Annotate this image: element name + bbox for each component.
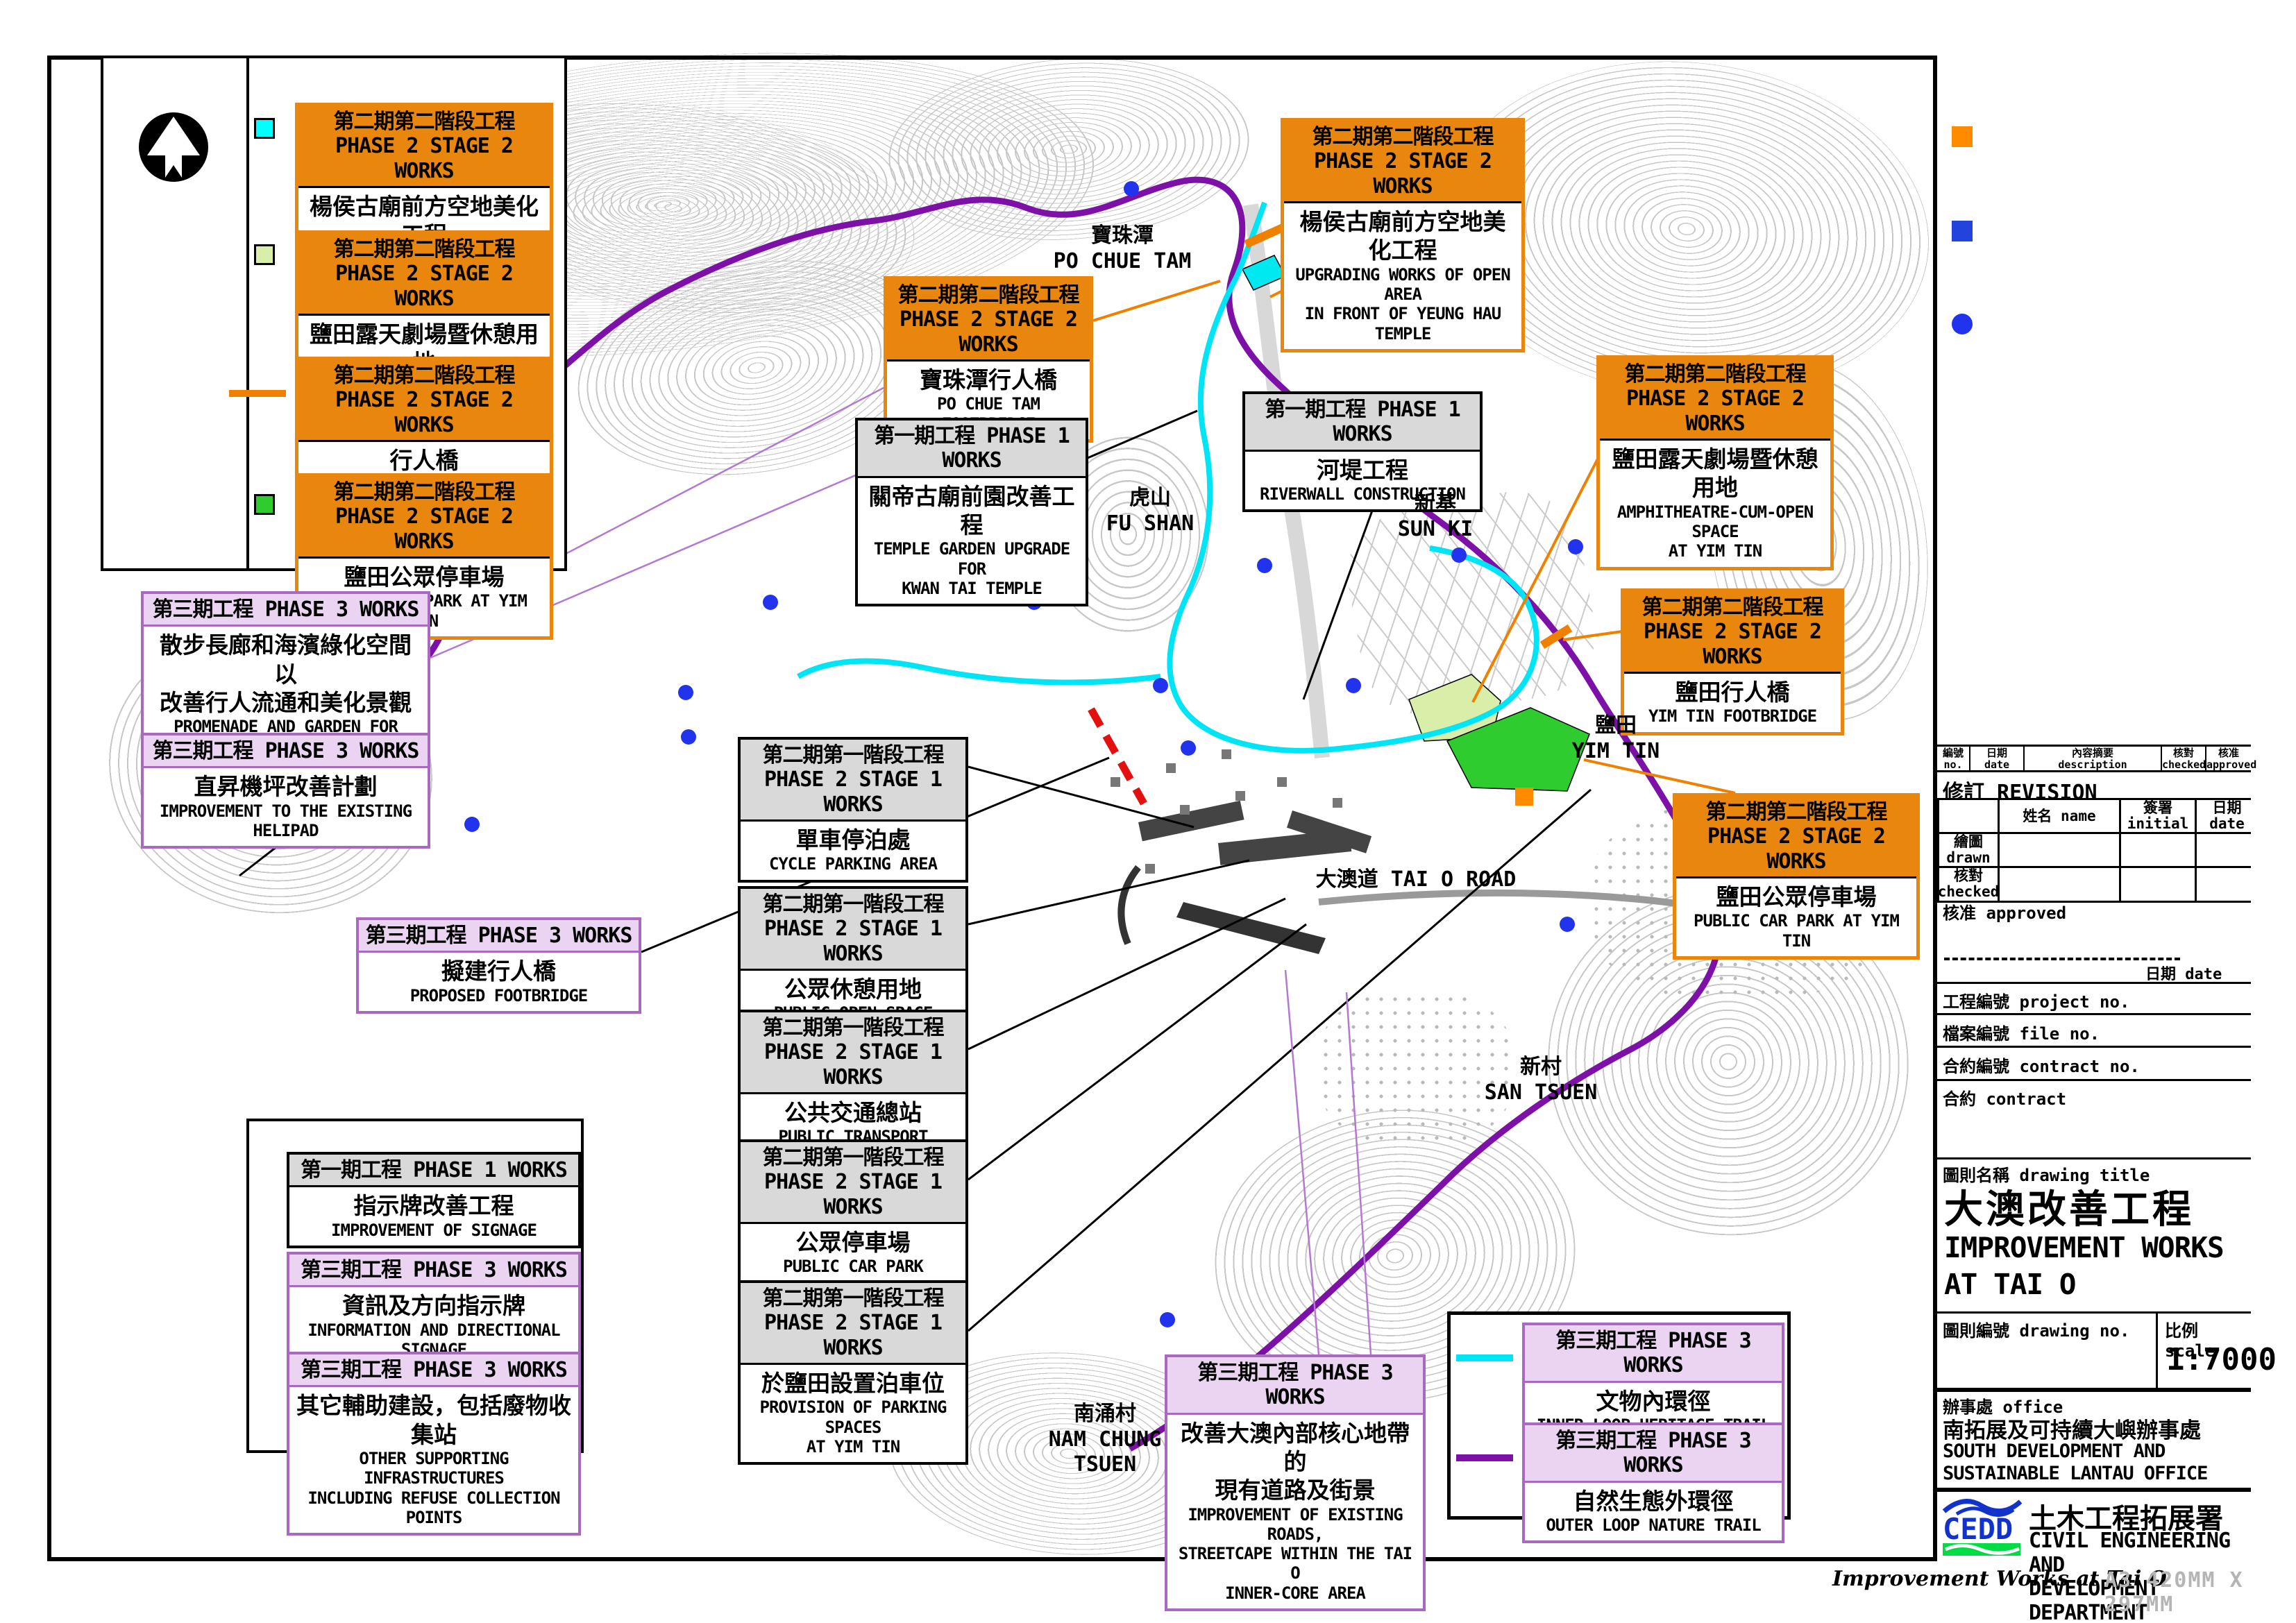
callout-text-en: IMPROVEMENT TO THE EXISTING HELIPAD xyxy=(149,801,422,841)
callout-public-car-park: 第二期第一階段工程 PHASE 2 STAGE 1 WORKS 公眾停車場PUB… xyxy=(738,1139,968,1285)
approved-signature-line xyxy=(1944,958,2180,960)
divider xyxy=(1937,1488,2251,1492)
callout-cycle-parking: 第二期第一階段工程 PHASE 2 STAGE 1 WORKS 單車停泊處CYC… xyxy=(738,737,968,883)
callout-text-zh: 公共交通總站 xyxy=(746,1098,960,1127)
project-no-label: 工程編號 project no. xyxy=(1943,988,2129,1012)
divider xyxy=(1937,1079,2251,1081)
rev-col-date: 日期 date xyxy=(1970,747,2025,770)
callout-outer-loop-trail: 第三期工程 PHASE 3 WORKS 自然生態外環徑OUTER LOOP NA… xyxy=(1522,1422,1784,1543)
callout-text-zh: 散步長廊和海濱綠化空間以 改善行人流通和美化景觀 xyxy=(149,631,422,717)
rev-col-approved: 核准 approved xyxy=(2206,747,2251,770)
callout-text-en: IMPROVEMENT OF SIGNAGE xyxy=(295,1221,573,1240)
callout-text-en: OTHER SUPPORTING INFRASTRUCTURES INCLUDI… xyxy=(295,1449,573,1527)
approved-label: 核准 approved xyxy=(1943,899,2066,924)
footer-paper-size: A3 420MM X 297MM xyxy=(2104,1568,2296,1617)
label-fu-shan: 虎山 FU SHAN xyxy=(1106,486,1194,536)
sig-row-checked: 核對 checked xyxy=(1939,868,1998,900)
divider-vertical xyxy=(2156,1311,2158,1388)
callout-header: 第二期第二階段工程 PHASE 2 STAGE 2 WORKS xyxy=(1284,121,1521,201)
callout-header: 第二期第二階段工程 PHASE 2 STAGE 2 WORKS xyxy=(298,477,550,556)
callout-header: 第三期工程 PHASE 3 WORKS xyxy=(144,736,428,766)
label-tai-o-road: 大澳道 TAI O ROAD xyxy=(1316,867,1517,893)
callout-text-en: TEMPLE GARDEN UPGRADE FOR KWAN TAI TEMPL… xyxy=(863,539,1080,598)
callout-header: 第二期第二階段工程 PHASE 2 STAGE 2 WORKS xyxy=(1624,592,1841,672)
signage-dot-icon xyxy=(1952,314,1973,334)
callout-header: 第二期第一階段工程 PHASE 2 STAGE 1 WORKS xyxy=(741,889,965,969)
callout-kwan-tai-temple: 第一期工程 PHASE 1 WORKS 關帝古廟前園改善工程TEMPLE GAR… xyxy=(855,418,1088,606)
title-block: 編號 no. 日期 date 內容摘要 description 核對 check… xyxy=(1933,56,2251,1561)
sig-col-date: 日期 date xyxy=(2197,800,2257,832)
temple-open-area xyxy=(1242,255,1285,290)
callout-header: 第二期第一階段工程 PHASE 2 STAGE 1 WORKS xyxy=(741,740,965,819)
callout-header: 第二期第一階段工程 PHASE 2 STAGE 1 WORKS xyxy=(741,1012,965,1092)
callout-text-zh: 擬建行人橋 xyxy=(364,957,633,985)
village-buildings xyxy=(1111,749,1371,954)
callout-text-en: PUBLIC CAR PARK AT YIM TIN xyxy=(1682,911,1911,951)
callout-header: 第三期工程 PHASE 3 WORKS xyxy=(289,1354,578,1385)
approved-date-label: 日期 date xyxy=(2145,962,2222,984)
callout-header: 第一期工程 PHASE 1 WORKS xyxy=(1245,394,1480,450)
callout-text-zh: 其它輔助建設，包括廢物收集站 xyxy=(295,1391,573,1449)
callout-text-zh: 改善大澳內部核心地帶的 現有道路及街景 xyxy=(1173,1419,1417,1505)
callout-header: 第三期工程 PHASE 3 WORKS xyxy=(359,920,639,951)
callout-header: 第三期工程 PHASE 3 WORKS xyxy=(1525,1425,1782,1481)
callout-header: 第二期第二階段工程 PHASE 2 STAGE 2 WORKS xyxy=(1600,359,1830,439)
callout-header: 第三期工程 PHASE 3 WORKS xyxy=(144,594,428,624)
callout-header: 第二期第二階段工程 PHASE 2 STAGE 2 WORKS xyxy=(298,360,550,440)
label-yim-tin: 鹽田 YIM TIN xyxy=(1572,713,1660,764)
callout-text-zh: 資訊及方向指示牌 xyxy=(295,1291,573,1320)
callout-text-zh: 直昇機坪改善計劃 xyxy=(149,772,422,801)
callout-text-zh: 鹽田行人橋 xyxy=(1630,678,1835,706)
swatch-amphitheatre xyxy=(254,244,275,265)
callout-text-en: YIM TIN FOOTBRIDGE xyxy=(1630,706,1835,726)
refuse-p2s2-icon xyxy=(1952,126,1973,147)
file-no-label: 檔案編號 file no. xyxy=(1943,1020,2100,1044)
swatch-footbridge-line xyxy=(229,390,286,397)
divider xyxy=(1937,1157,2251,1159)
office-en: SOUTH DEVELOPMENT AND SUSTAINABLE LANTAU… xyxy=(1943,1441,2207,1486)
callout-text-en: PUBLIC CAR PARK xyxy=(746,1257,960,1276)
callout-text-en: IMPROVEMENT OF EXISTING ROADS, STREETCAP… xyxy=(1173,1505,1417,1604)
callout-text-zh: 寶珠潭行人橋 xyxy=(893,366,1084,394)
callout-text-en: PROPOSED FOOTBRIDGE xyxy=(364,986,633,1005)
swatch-inner-loop-line xyxy=(1456,1354,1513,1361)
swatch-cyan-open-area xyxy=(254,118,275,139)
drawing-title-zh: 大澳改善工程 xyxy=(1944,1178,2194,1234)
callout-signage-improvement: 第一期工程 PHASE 1 WORKS 指示牌改善工程IMPROVEMENT O… xyxy=(287,1152,581,1248)
label-sun-ki: 新基 SUN KI xyxy=(1398,491,1473,542)
divider xyxy=(1937,1311,2251,1314)
north-arrow-icon xyxy=(136,110,211,185)
svg-text:CEDD: CEDD xyxy=(1943,1512,2013,1546)
rev-col-no: 編號 no. xyxy=(1937,747,1970,770)
callout-yeung-hau-temple: 第二期第二階段工程 PHASE 2 STAGE 2 WORKS 楊侯古廟前方空地… xyxy=(1281,118,1525,352)
sig-row-drawn: 繪圖 drawn xyxy=(1939,834,1998,866)
callout-text-en: CYCLE PARKING AREA xyxy=(746,854,960,874)
drawing-title-en: IMPROVEMENT WORKS AT TAI O xyxy=(1944,1230,2224,1304)
callout-amphitheatre: 第二期第二階段工程 PHASE 2 STAGE 2 WORKS 鹽田露天劇場暨休… xyxy=(1596,355,1834,570)
divider xyxy=(1937,982,2251,984)
sig-col-initial: 簽署 initial xyxy=(2121,800,2195,832)
callout-proposed-footbridge: 第三期工程 PHASE 3 WORKS 擬建行人橋PROPOSED FOOTBR… xyxy=(356,917,641,1014)
signature-table: 姓名 name 簽署 initial 日期 date 繪圖 drawn 核對 c… xyxy=(1937,798,2251,903)
scale-value: 1:7000 xyxy=(2166,1342,2277,1377)
callout-text-zh: 鹽田露天劇場暨休憩用地 xyxy=(1605,445,1825,502)
callout-inner-core-roads: 第三期工程 PHASE 3 WORKS 改善大澳內部核心地帶的 現有道路及街景I… xyxy=(1165,1354,1426,1611)
swatch-car-park xyxy=(254,494,275,515)
refuse-point-p2s2 xyxy=(1515,788,1533,806)
callout-text-en: OUTER LOOP NATURE TRAIL xyxy=(1530,1515,1776,1535)
label-nam-chung-tsuen: 南涌村 NAM CHUNG TSUEN xyxy=(1049,1402,1162,1478)
callout-text-zh: 指示牌改善工程 xyxy=(295,1191,573,1220)
callout-yim-tin-car-park: 第二期第二階段工程 PHASE 2 STAGE 2 WORKS 鹽田公眾停車場P… xyxy=(1673,793,1920,960)
label-san-tsuen: 新村 SAN TSUEN xyxy=(1485,1055,1598,1105)
callout-text-en: PROVISION OF PARKING SPACES AT YIM TIN xyxy=(746,1397,960,1456)
callout-supporting-infrastructure: 第三期工程 PHASE 3 WORKS 其它輔助建設，包括廢物收集站OTHER … xyxy=(287,1352,581,1536)
callout-text-zh: 行人橋 xyxy=(304,446,544,475)
cedd-logo: CEDD xyxy=(1941,1493,2023,1558)
callout-header: 第三期工程 PHASE 3 WORKS xyxy=(1167,1357,1423,1413)
drawing-sheet: 第二期第二階段工程 PHASE 2 STAGE 2 WORKS 楊侯古廟前方空地… xyxy=(0,0,2296,1623)
callout-header: 第三期工程 PHASE 3 WORKS xyxy=(1525,1325,1782,1381)
callout-text-en: AMPHITHEATRE-CUM-OPEN SPACE AT YIM TIN xyxy=(1605,502,1825,561)
callout-text-zh: 於鹽田設置泊車位 xyxy=(746,1369,960,1397)
sig-col-name: 姓名 name xyxy=(2000,800,2119,832)
callout-text-en: UPGRADING WORKS OF OPEN AREA IN FRONT OF… xyxy=(1290,265,1516,343)
revision-header-row: 編號 no. 日期 date 內容摘要 description 核對 check… xyxy=(1937,745,2251,772)
callout-parking-spaces-yim-tin: 第二期第一階段工程 PHASE 2 STAGE 1 WORKS 於鹽田設置泊車位… xyxy=(738,1280,968,1465)
callout-text-zh: 公眾停車場 xyxy=(746,1228,960,1257)
callout-text-zh: 鹽田公眾停車場 xyxy=(1682,883,1911,911)
callout-text-zh: 關帝古廟前園改善工程 xyxy=(863,482,1080,540)
contract-no-label: 合約編號 contract no. xyxy=(1943,1053,2140,1077)
callout-helipad: 第三期工程 PHASE 3 WORKS 直昇機坪改善計劃IMPROVEMENT … xyxy=(141,733,430,849)
callout-header: 第二期第二階段工程 PHASE 2 STAGE 2 WORKS xyxy=(298,106,550,186)
contract-label: 合約 contract xyxy=(1943,1085,2066,1110)
proposed-footbridge-mark xyxy=(1091,709,1144,804)
refuse-p3-icon xyxy=(1952,221,1973,241)
callout-header: 第二期第二階段工程 PHASE 2 STAGE 2 WORKS xyxy=(298,234,550,314)
callout-header: 第二期第一階段工程 PHASE 2 STAGE 1 WORKS xyxy=(741,1283,965,1363)
callout-text-zh: 楊侯古廟前方空地美化工程 xyxy=(1290,207,1516,265)
label-po-chue-tam: 寶珠潭 PO CHUE TAM xyxy=(1054,223,1192,274)
callout-info-signage: 第三期工程 PHASE 3 WORKS 資訊及方向指示牌INFORMATION … xyxy=(287,1252,581,1368)
drawing-no-label: 圖則編號 drawing no. xyxy=(1943,1317,2129,1341)
callout-text-zh: 單車停泊處 xyxy=(746,826,960,854)
callout-text-zh: 自然生態外環徑 xyxy=(1530,1487,1776,1515)
divider xyxy=(1937,1013,2251,1015)
callout-header: 第二期第一階段工程 PHASE 2 STAGE 1 WORKS xyxy=(741,1142,965,1222)
rev-col-checked: 核對 checked xyxy=(2162,747,2206,770)
callout-text-zh: 文物內環徑 xyxy=(1530,1387,1776,1416)
callout-text-zh: 河堤工程 xyxy=(1251,456,1474,484)
callout-header: 第三期工程 PHASE 3 WORKS xyxy=(289,1255,578,1285)
divider xyxy=(1937,1388,2251,1392)
callout-header: 第一期工程 PHASE 1 WORKS xyxy=(289,1155,578,1185)
callout-header: 第二期第二階段工程 PHASE 2 STAGE 2 WORKS xyxy=(887,280,1090,359)
callout-text-zh: 公眾休憩用地 xyxy=(746,975,960,1003)
divider xyxy=(1937,1046,2251,1048)
office-zh: 南拓展及可持續大嶼辦事處 xyxy=(1943,1413,2201,1444)
callout-header: 第二期第二階段工程 PHASE 2 STAGE 2 WORKS xyxy=(1676,797,1916,876)
rev-col-description: 內容摘要 description xyxy=(2025,747,2162,770)
callout-header: 第一期工程 PHASE 1 WORKS xyxy=(858,420,1086,476)
callout-text-zh: 鹽田公眾停車場 xyxy=(304,563,544,591)
swatch-outer-loop-line xyxy=(1456,1454,1513,1461)
legend-panel-divider xyxy=(246,56,249,571)
